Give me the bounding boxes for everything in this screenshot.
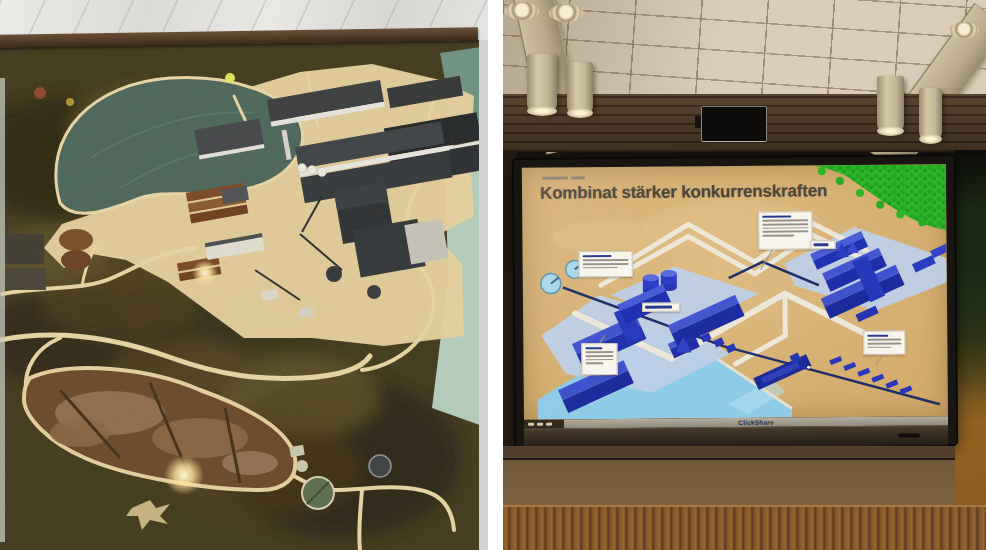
screen-glare <box>522 164 948 420</box>
bezel-vent <box>898 433 920 437</box>
wood-wainscot <box>503 505 986 550</box>
dark-window-foliage <box>955 150 986 506</box>
recessed-light-icon <box>949 22 979 38</box>
slide: Kombinat stärker konkurrenskraften <box>522 164 948 420</box>
left-photo-scale-model <box>0 0 488 550</box>
cylinder-downlight <box>877 76 904 132</box>
status-indicator-icons <box>524 419 564 428</box>
recessed-light-icon <box>549 4 583 22</box>
presentation-screen: Kombinat stärker konkurrenskraften <box>514 156 956 448</box>
right-photo-conference-room: Kombinat stärker konkurrenskraften <box>503 0 986 550</box>
cylinder-downlight <box>527 54 557 112</box>
cylinder-downlight <box>567 62 593 114</box>
wall-speaker <box>701 106 767 142</box>
recessed-light-icon <box>505 2 539 20</box>
clickshare-label: ClickShare <box>738 419 774 426</box>
cylinder-downlight <box>919 88 942 140</box>
wall-band-under-screen <box>503 446 955 460</box>
scale-model <box>0 38 488 550</box>
wall-band-lower <box>503 460 955 505</box>
photo-collage: Kombinat stärker konkurrenskraften <box>0 0 986 550</box>
